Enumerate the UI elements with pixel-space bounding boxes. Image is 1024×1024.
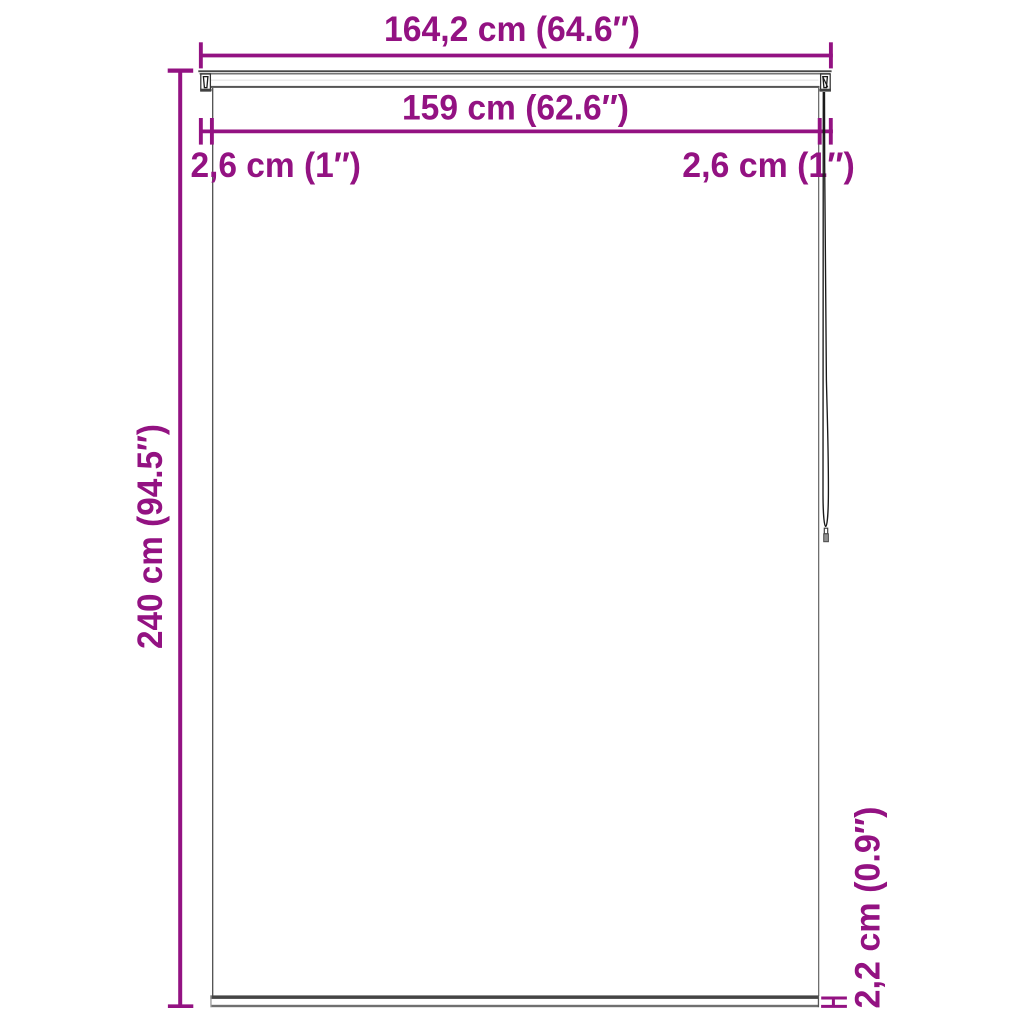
svg-text:2,6 cm (1″): 2,6 cm (1″) bbox=[190, 146, 361, 185]
svg-text:164,2 cm (64.6″): 164,2 cm (64.6″) bbox=[384, 10, 640, 49]
svg-text:159 cm (62.6″): 159 cm (62.6″) bbox=[402, 89, 629, 128]
svg-text:2,2 cm (0.9″): 2,2 cm (0.9″) bbox=[848, 807, 887, 1009]
svg-text:2,6 cm (1″): 2,6 cm (1″) bbox=[682, 146, 855, 185]
svg-text:240 cm (94.5″): 240 cm (94.5″) bbox=[131, 424, 170, 649]
